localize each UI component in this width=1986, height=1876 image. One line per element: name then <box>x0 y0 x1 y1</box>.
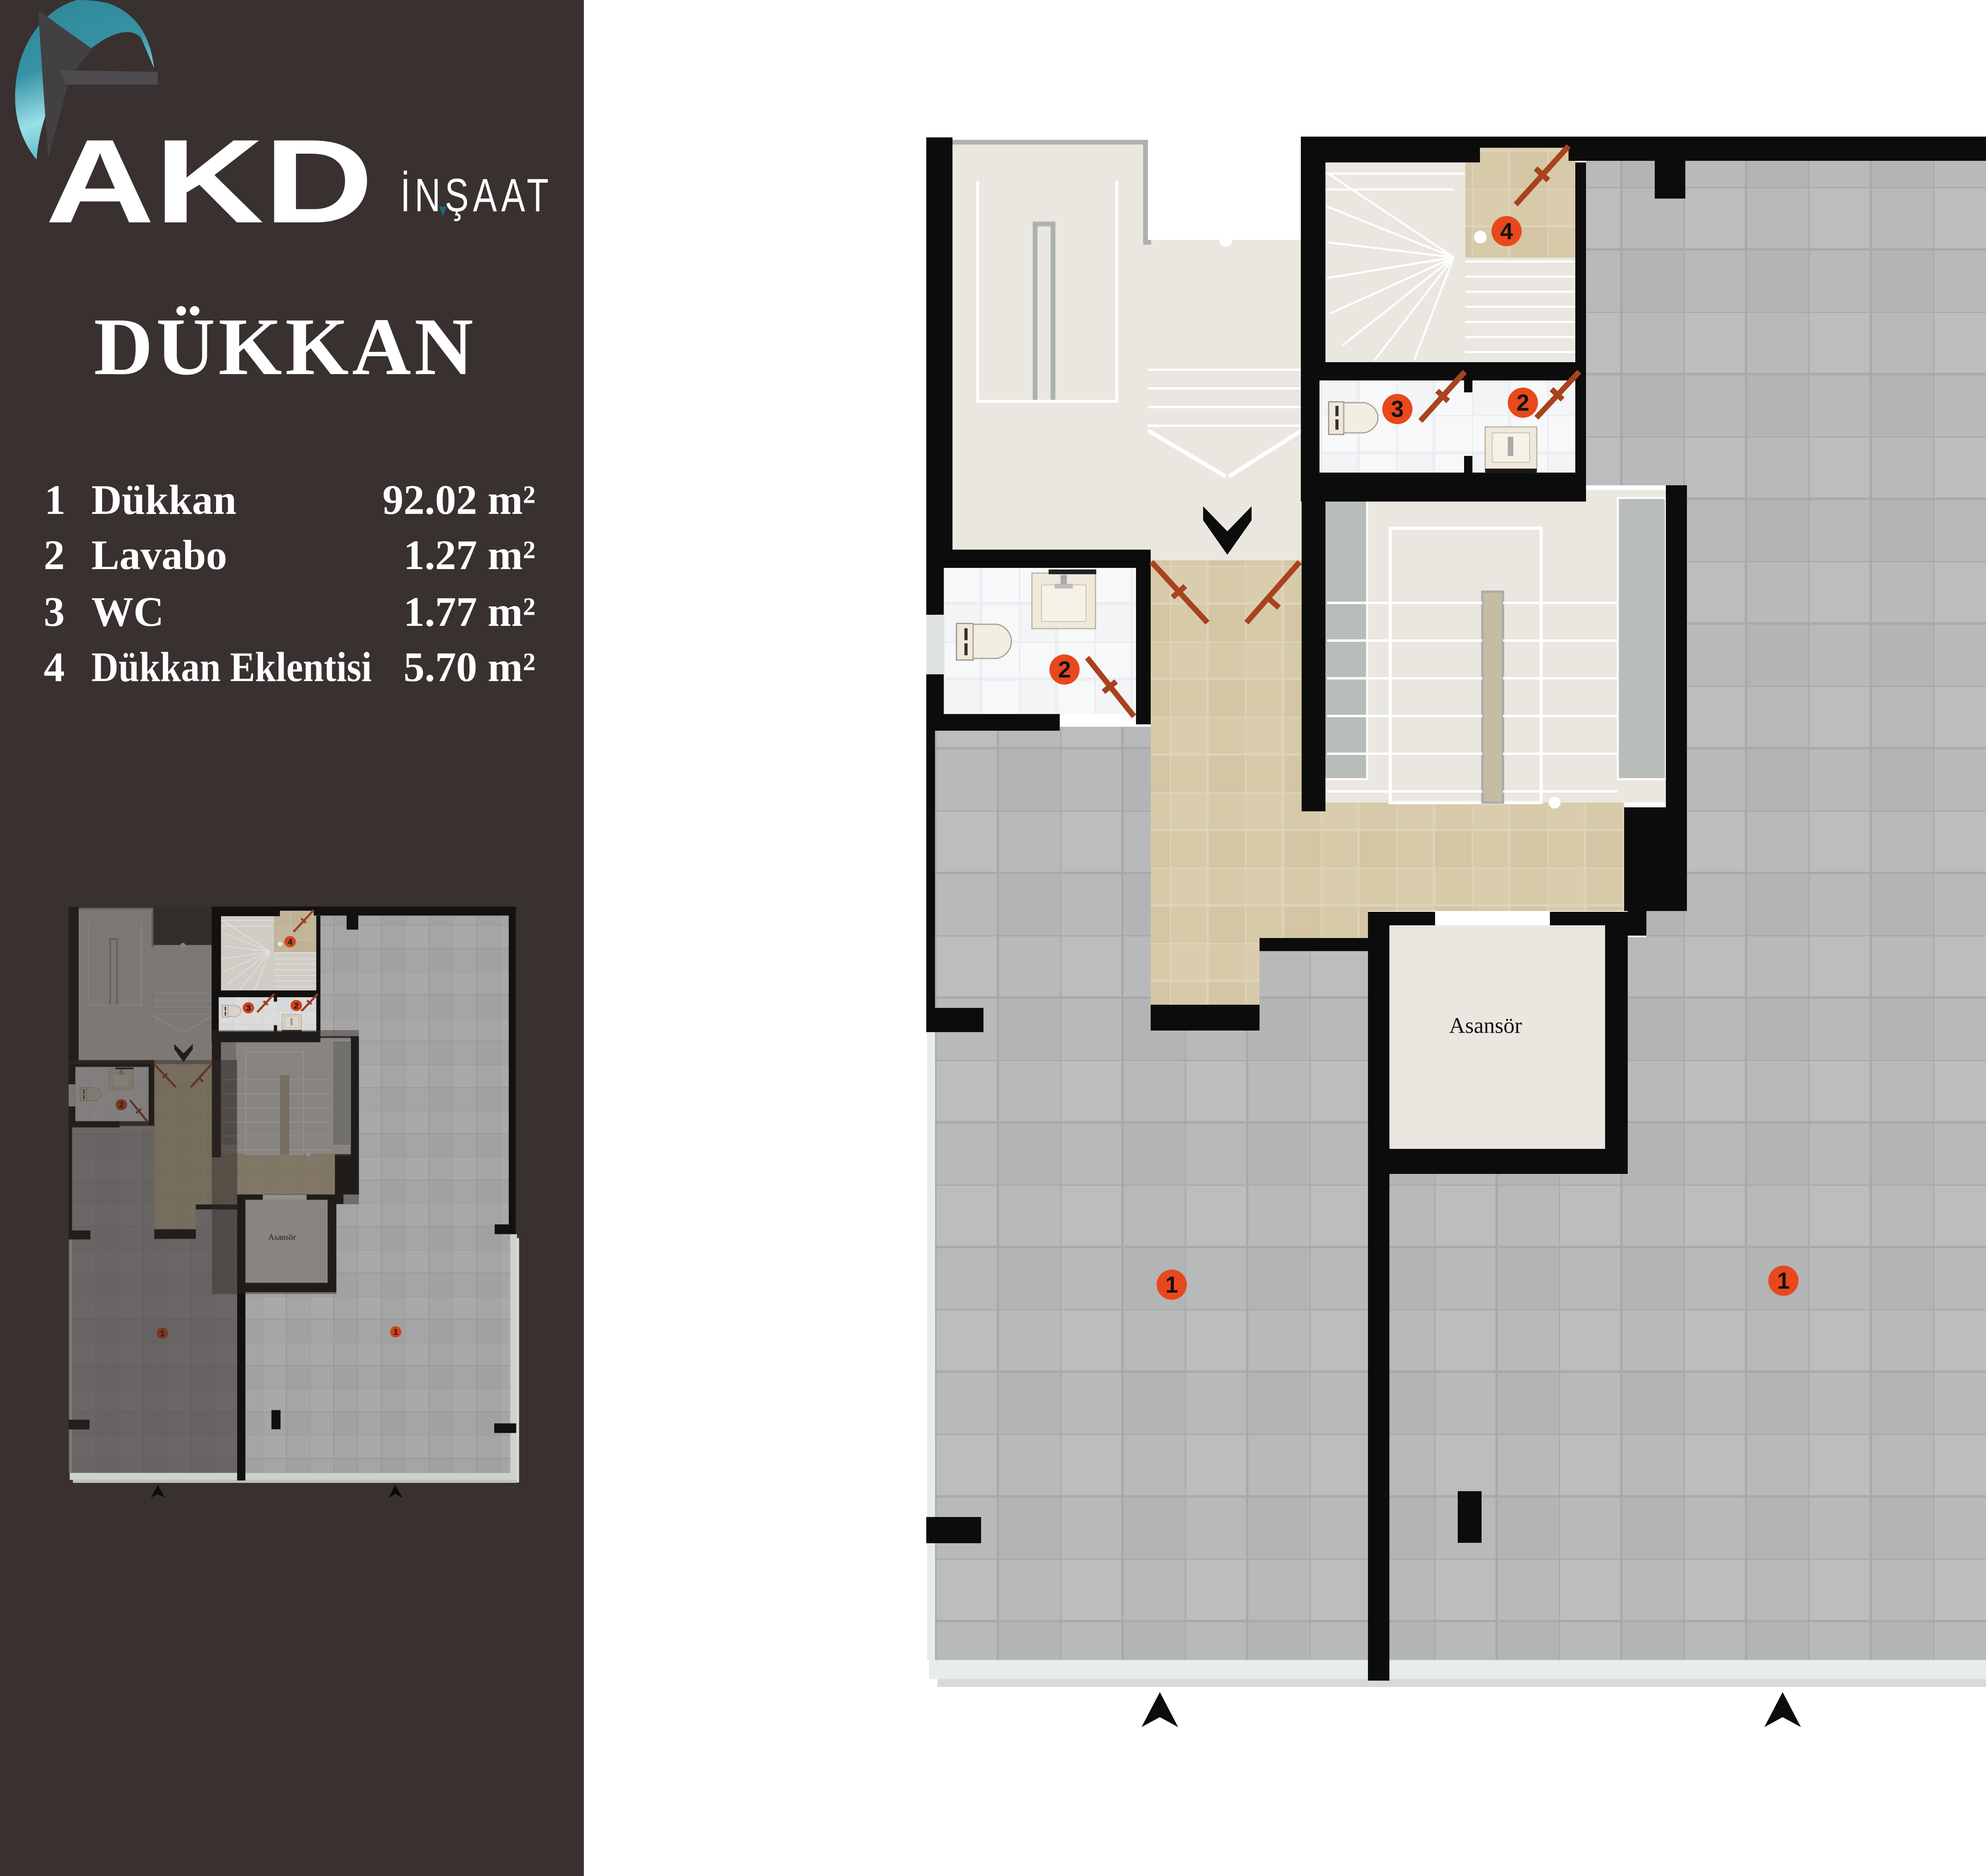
svg-text:2: 2 <box>44 532 65 578</box>
svg-text:1.27 m²: 1.27 m² <box>404 532 535 578</box>
svg-text:5.70 m²: 5.70 m² <box>404 644 535 690</box>
svg-text:WC: WC <box>91 589 164 635</box>
svg-text:DÜKKAN: DÜKKAN <box>94 301 477 392</box>
svg-text:4: 4 <box>44 644 65 690</box>
svg-text:Dükkan: Dükkan <box>91 477 236 523</box>
svg-text:92.02 m²: 92.02 m² <box>383 477 535 523</box>
svg-text:İNŞAAT: İNŞAAT <box>400 169 553 222</box>
svg-text:1.77 m²: 1.77 m² <box>404 589 535 635</box>
svg-text:3: 3 <box>44 589 65 635</box>
svg-text:Dükkan Eklentisi: Dükkan Eklentisi <box>91 644 372 690</box>
svg-text:AKD: AKD <box>45 114 373 248</box>
svg-text:1: 1 <box>44 477 66 523</box>
svg-text:Lavabo: Lavabo <box>91 532 227 578</box>
